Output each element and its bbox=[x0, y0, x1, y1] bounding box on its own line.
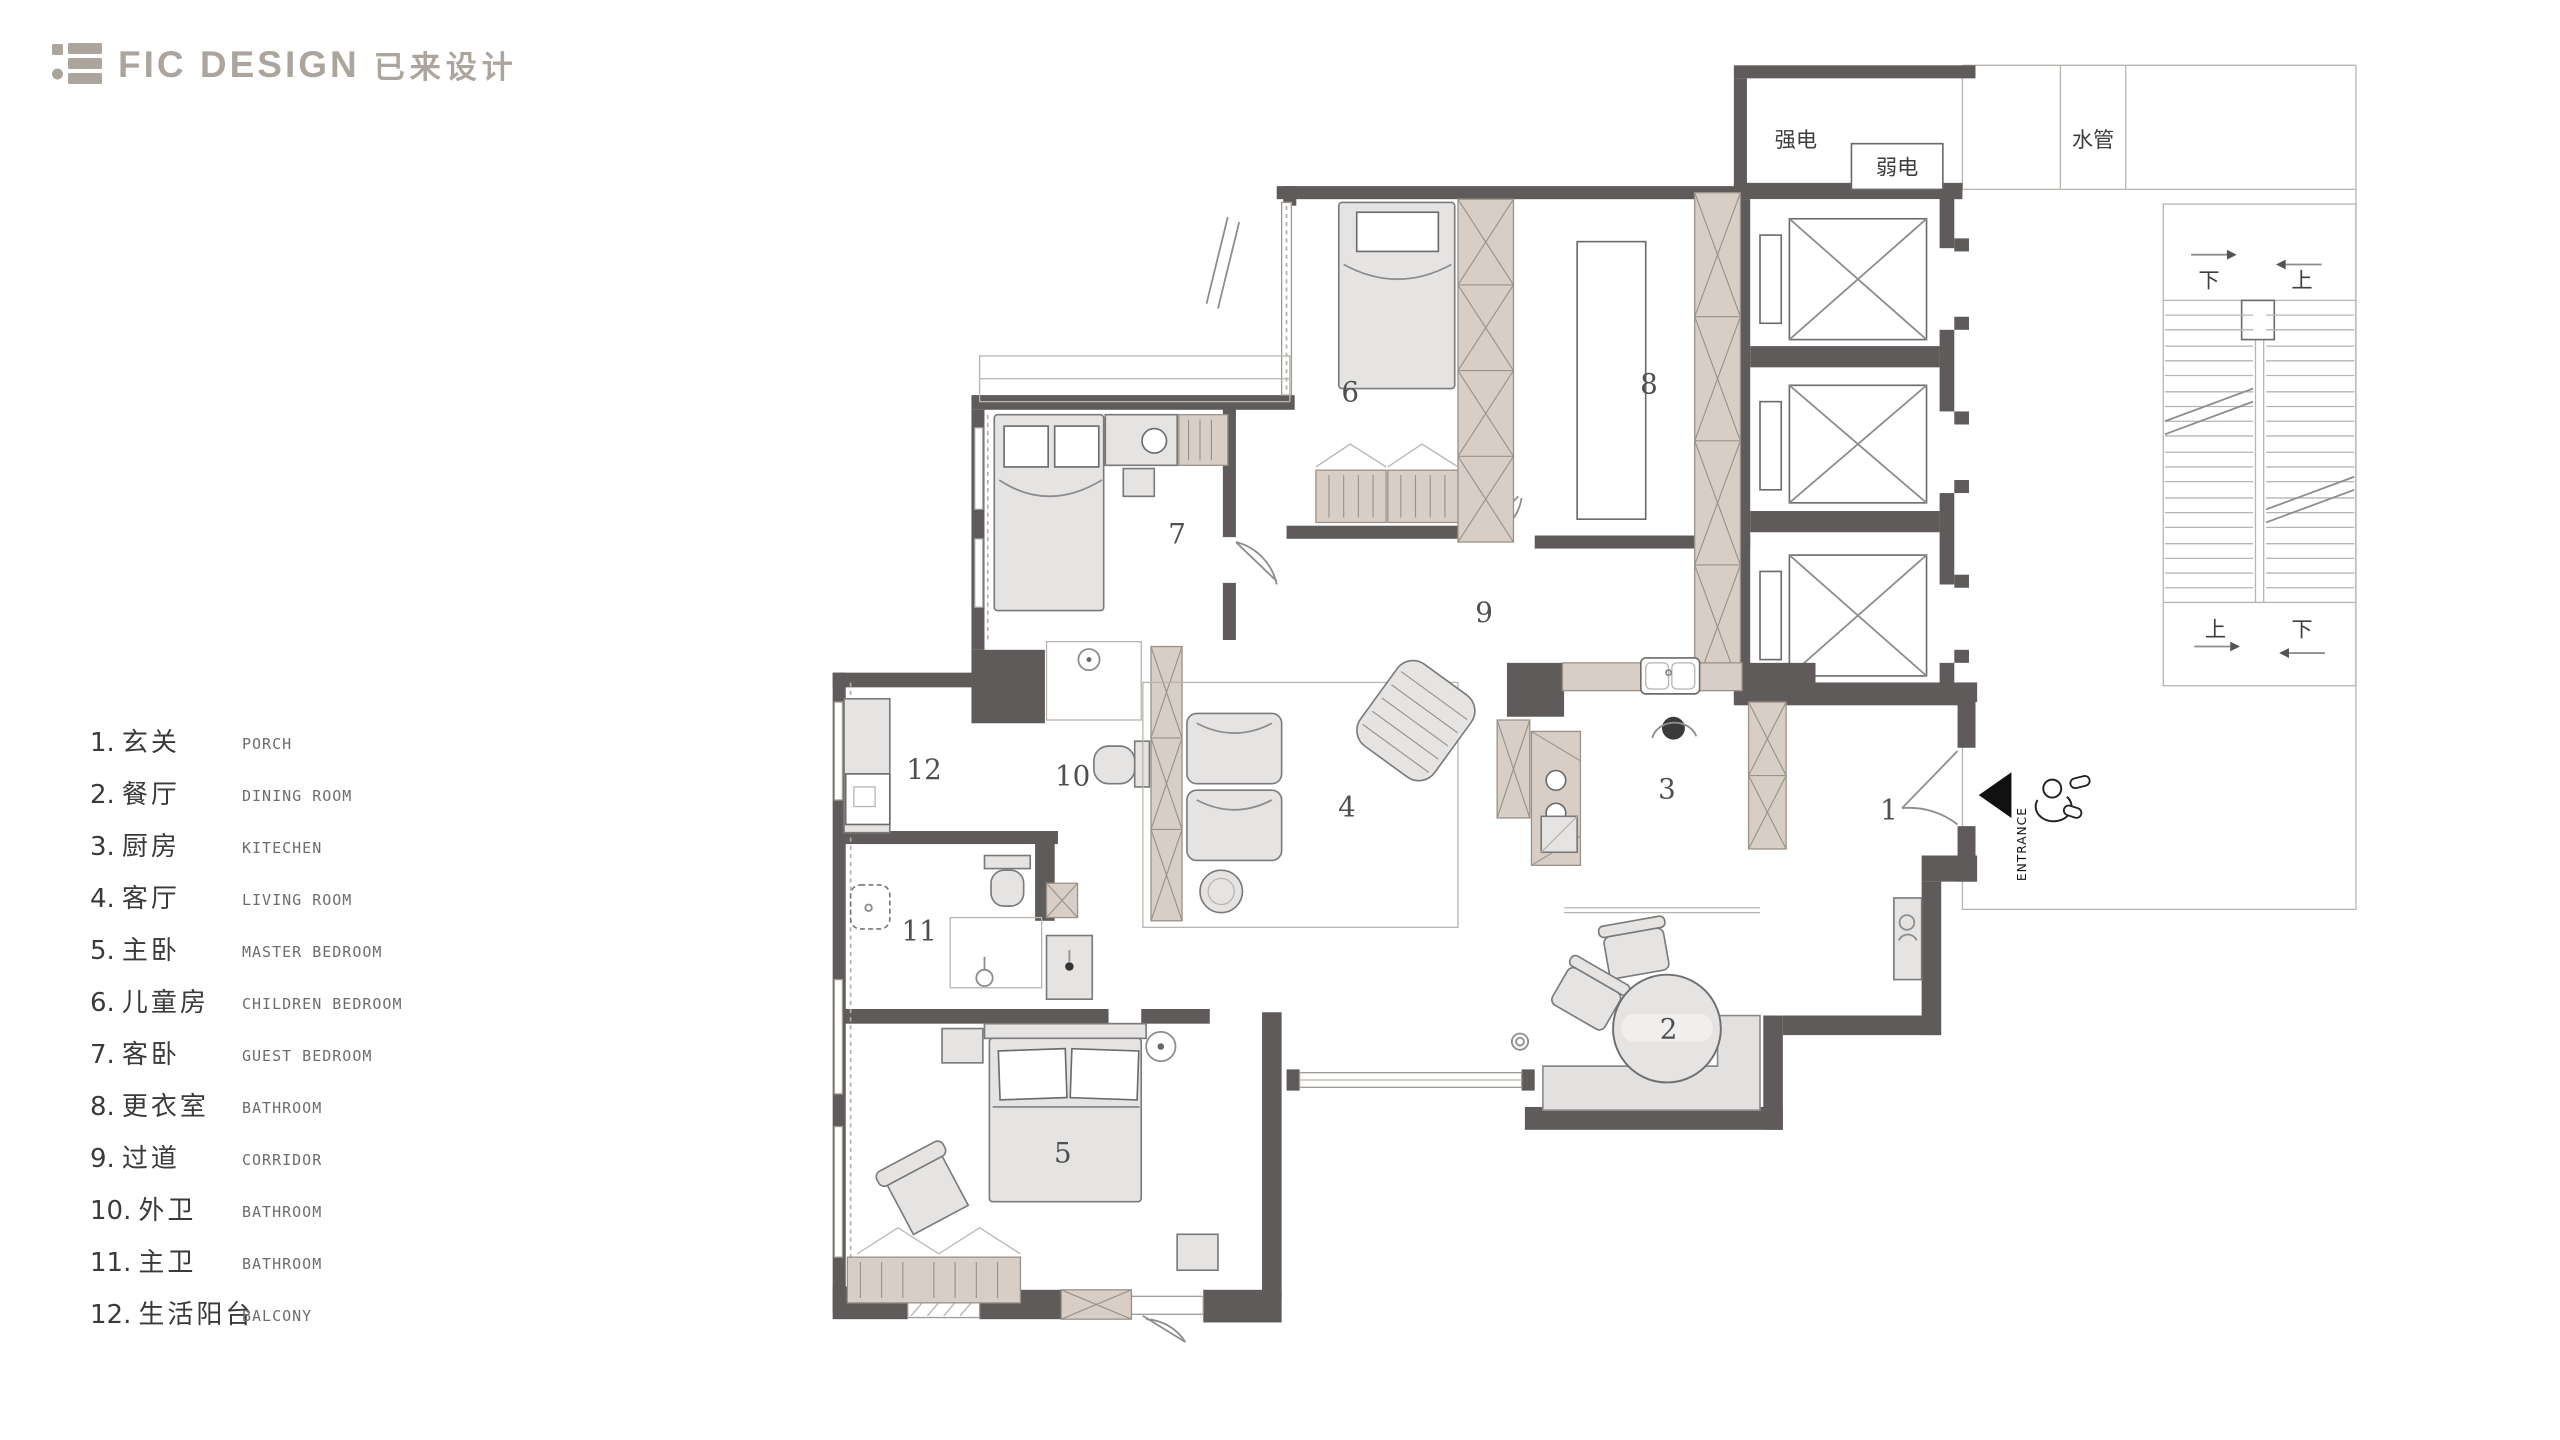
common-corridor-outline: 水管 bbox=[1962, 65, 2355, 909]
legend-en: DINING ROOM bbox=[242, 787, 352, 805]
stair-label-top-up: 上 bbox=[2291, 268, 2312, 293]
water-pipe-label: 水管 bbox=[2072, 128, 2114, 153]
room-label-12: 12 bbox=[906, 753, 941, 786]
legend-en: KITECHEN bbox=[242, 839, 322, 857]
elevator-block bbox=[1734, 189, 1969, 705]
legend-item-10: 10.外卫BATHROOM bbox=[90, 1196, 254, 1226]
room-label-10: 10 bbox=[1055, 759, 1090, 792]
legend-en: GUEST BEDROOM bbox=[242, 1047, 372, 1065]
stair-label-top-down: 下 bbox=[2198, 268, 2219, 293]
legend-item-9: 9.过道CORRIDOR bbox=[90, 1144, 254, 1174]
legend-en: PORCH bbox=[242, 735, 292, 753]
entrance-arrow bbox=[1979, 772, 2012, 818]
legend-en: BALCONY bbox=[242, 1307, 312, 1325]
entrance-label: ENTRANCE bbox=[2015, 807, 2029, 881]
legend-cn: 过道 bbox=[122, 1144, 180, 1174]
room-label-2: 2 bbox=[1660, 1012, 1678, 1045]
legend-num: 7. bbox=[90, 1040, 115, 1070]
legend-en: MASTER BEDROOM bbox=[242, 943, 382, 961]
legend-cn: 主卫 bbox=[138, 1248, 196, 1278]
legend-en: BATHROOM bbox=[242, 1203, 322, 1221]
legend-cn: 客卧 bbox=[122, 1040, 180, 1070]
room-legend: 1.玄关PORCH 2.餐厅DINING ROOM 3.厨房KITECHEN 4… bbox=[90, 728, 254, 1352]
legend-item-4: 4.客厅LIVING ROOM bbox=[90, 884, 254, 914]
utility-electric-block: 强电 弱电 bbox=[1734, 65, 1976, 199]
bathroom11-furniture bbox=[851, 856, 1093, 1000]
legend-item-8: 8.更衣室BATHROOM bbox=[90, 1092, 254, 1122]
brand-logo: FIC DESIGN 已来设计 bbox=[52, 42, 518, 87]
cabinets bbox=[847, 193, 1786, 1320]
dining-furniture bbox=[1512, 915, 1760, 1110]
room-label-8: 8 bbox=[1640, 367, 1658, 400]
room-label-3: 3 bbox=[1658, 772, 1676, 805]
brand-name: FIC DESIGN bbox=[118, 44, 360, 86]
brand-logo-icon bbox=[52, 43, 102, 87]
stair-label-bottom-down: 下 bbox=[2291, 618, 2312, 643]
legend-item-2: 2.餐厅DINING ROOM bbox=[90, 780, 254, 810]
legend-cn: 外卫 bbox=[138, 1196, 196, 1226]
legend-en: CHILDREN BEDROOM bbox=[242, 995, 403, 1013]
master-bedroom-furniture bbox=[874, 1024, 1218, 1271]
balcony-laundry-furniture bbox=[844, 699, 890, 833]
room-label-7: 7 bbox=[1168, 518, 1186, 551]
legend-cn: 玄关 bbox=[122, 728, 180, 758]
legend-en: BATHROOM bbox=[242, 1255, 322, 1273]
legend-cn: 儿童房 bbox=[122, 988, 209, 1018]
legend-num: 9. bbox=[90, 1144, 115, 1174]
weak-power-label: 弱电 bbox=[1876, 156, 1918, 181]
legend-item-5: 5.主卧MASTER BEDROOM bbox=[90, 936, 254, 966]
living-room-furniture bbox=[1143, 653, 1483, 928]
legend-num: 2. bbox=[90, 780, 115, 810]
legend-item-3: 3.厨房KITECHEN bbox=[90, 832, 254, 862]
legend-num: 8. bbox=[90, 1092, 115, 1122]
room-label-11: 11 bbox=[902, 914, 937, 947]
legend-en: LIVING ROOM bbox=[242, 891, 352, 909]
legend-item-11: 11.主卫BATHROOM bbox=[90, 1248, 254, 1278]
legend-item-12: 12.生活阳台BALCONY bbox=[90, 1300, 254, 1330]
legend-cn: 客厅 bbox=[122, 884, 180, 914]
floor-plan-drawing: 水管 下 上 上 下 bbox=[0, 0, 2560, 1440]
room-label-9: 9 bbox=[1475, 596, 1493, 629]
legend-num: 10. bbox=[90, 1196, 131, 1226]
legend-cn: 主卧 bbox=[122, 936, 180, 966]
floor-plan-page: 水管 下 上 上 下 bbox=[0, 0, 2560, 1440]
legend-num: 1. bbox=[90, 728, 115, 758]
legend-cn: 更衣室 bbox=[122, 1092, 209, 1122]
legend-item-1: 1.玄关PORCH bbox=[90, 728, 254, 758]
legend-cn: 厨房 bbox=[122, 832, 180, 862]
legend-cn: 生活阳台 bbox=[138, 1300, 254, 1330]
legend-num: 5. bbox=[90, 936, 115, 966]
legend-en: BATHROOM bbox=[242, 1099, 322, 1117]
brand-name-cn: 已来设计 bbox=[374, 42, 518, 87]
entrance-person-figure bbox=[2036, 775, 2091, 821]
strong-power-label: 强电 bbox=[1775, 128, 1817, 153]
legend-item-7: 7.客卧GUEST BEDROOM bbox=[90, 1040, 254, 1070]
stair-label-bottom-up: 上 bbox=[2205, 618, 2226, 643]
legend-num: 3. bbox=[90, 832, 115, 862]
legend-num: 4. bbox=[90, 884, 115, 914]
stairwell: 下 上 上 下 bbox=[2163, 204, 2356, 686]
legend-num: 11. bbox=[90, 1248, 131, 1278]
legend-en: CORRIDOR bbox=[242, 1151, 322, 1169]
legend-num: 12. bbox=[90, 1300, 131, 1330]
room-label-6: 6 bbox=[1341, 376, 1359, 409]
children-bedroom-furniture bbox=[1316, 202, 1458, 522]
legend-cn: 餐厅 bbox=[122, 780, 180, 810]
legend-num: 6. bbox=[90, 988, 115, 1018]
guest-bedroom-furniture bbox=[994, 415, 1227, 611]
room-label-5: 5 bbox=[1054, 1136, 1072, 1169]
legend-item-6: 6.儿童房CHILDREN BEDROOM bbox=[90, 988, 254, 1018]
kitchen-furniture bbox=[1531, 658, 1742, 865]
room-label-4: 4 bbox=[1338, 790, 1356, 823]
room-label-1: 1 bbox=[1880, 794, 1898, 827]
